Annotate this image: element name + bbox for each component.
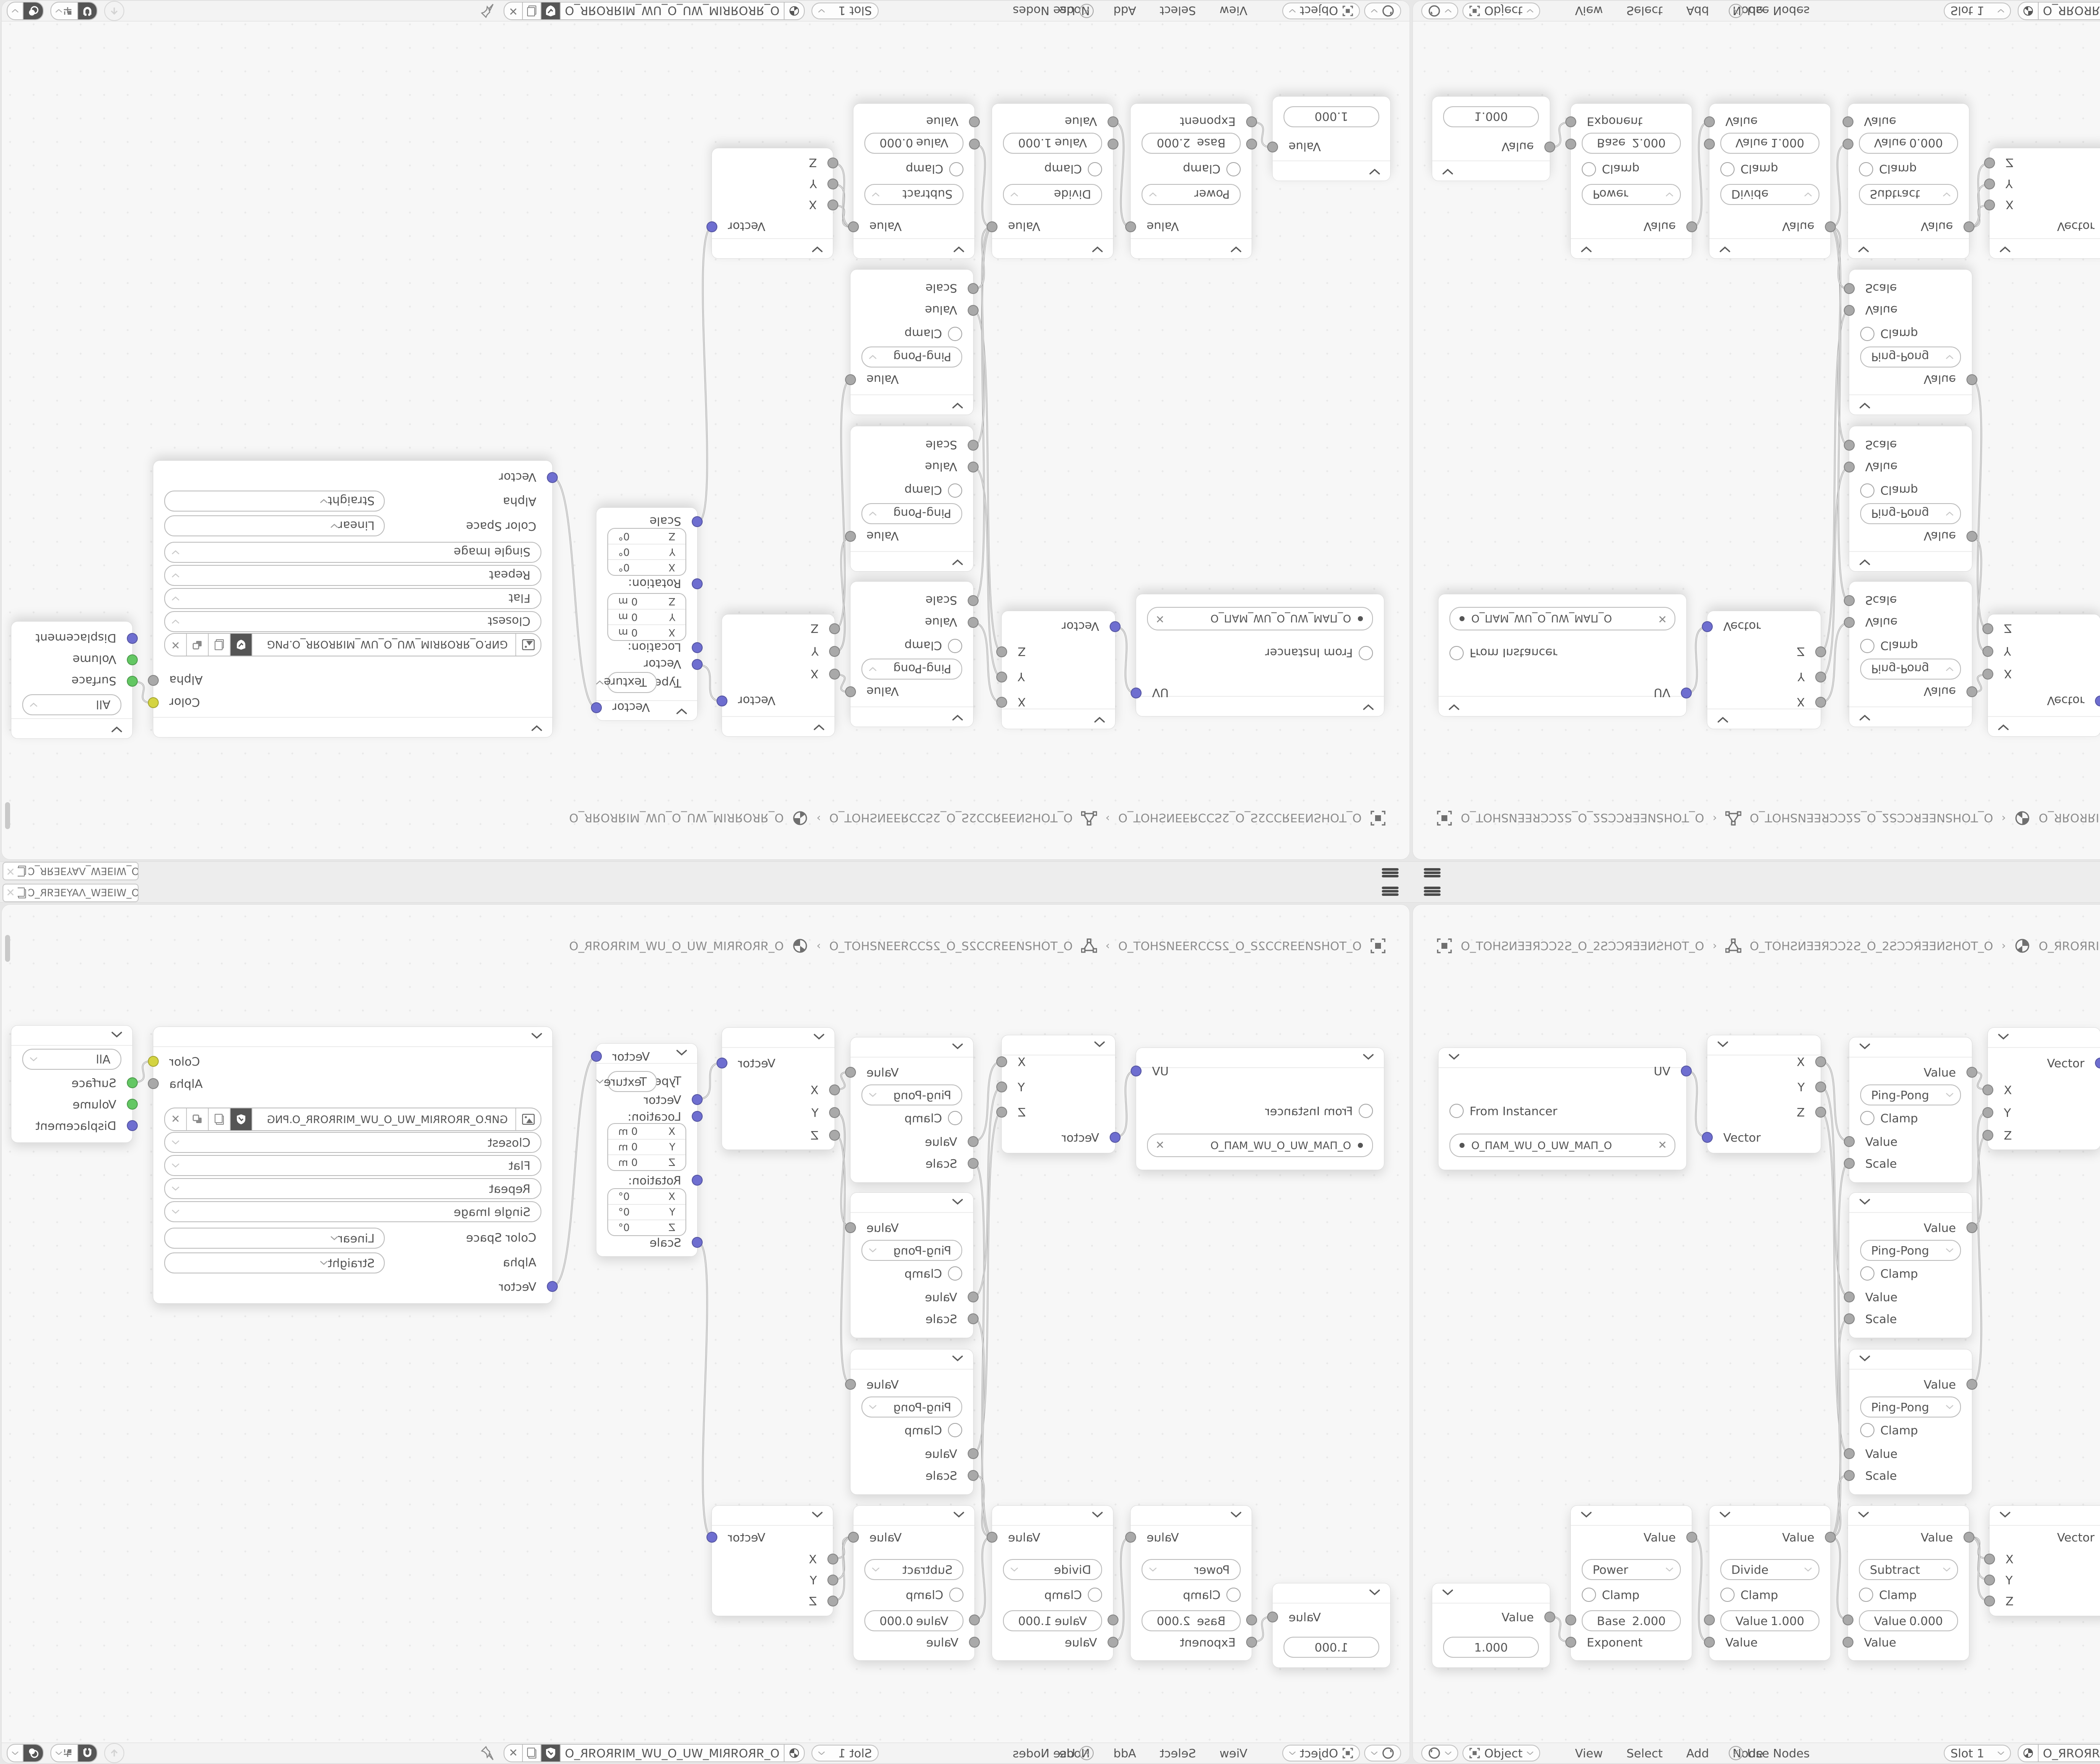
- input-socket-value[interactable]: [968, 1448, 979, 1459]
- node-material-output[interactable]: AllSurfaceVolumeDisplacement: [11, 1025, 133, 1143]
- input-socket-surface[interactable]: [127, 1077, 138, 1088]
- vertical-scrollbar[interactable]: [5, 802, 10, 829]
- hamburger-menu-icon[interactable]: [1382, 886, 1399, 898]
- node-math-subtract[interactable]: ValueSubtractClampValue0.000Value: [853, 1505, 975, 1661]
- output-socket-value[interactable]: [1686, 1532, 1697, 1543]
- hamburger-menu-icon[interactable]: [1424, 886, 1441, 898]
- input-socket-scale[interactable]: [1844, 283, 1855, 294]
- copy-icon[interactable]: [209, 634, 231, 656]
- dropdown-flat[interactable]: Flat: [164, 588, 541, 609]
- proportional-edit-control[interactable]: [7, 1744, 44, 1762]
- output-socket-color[interactable]: [148, 697, 159, 708]
- dropdown-power[interactable]: Power: [1582, 1559, 1681, 1580]
- input-socket[interactable]: [1246, 139, 1257, 150]
- output-socket-value[interactable]: [848, 221, 859, 232]
- material-datablock[interactable]: O_ЯROЯRIM_WU_O_UW_MIЯROЯR_O ✕: [2018, 1744, 2100, 1762]
- snap-control[interactable]: [50, 1744, 97, 1762]
- editor-type-button[interactable]: [1421, 1745, 1458, 1761]
- collapse-chevron-icon[interactable]: [952, 559, 963, 565]
- collapse-chevron-icon[interactable]: [1092, 247, 1103, 252]
- input-socket-rotation[interactable]: [692, 1175, 703, 1186]
- collapse-chevron-icon[interactable]: [1449, 1054, 1459, 1060]
- collapse-chevron-icon[interactable]: [814, 724, 824, 730]
- input-socket-y[interactable]: [827, 1575, 838, 1585]
- output-socket-value[interactable]: [1966, 686, 1977, 697]
- output-socket-value[interactable]: [1963, 221, 1974, 232]
- dropdown-ping-pong[interactable]: Ping-Pong: [1860, 1240, 1961, 1261]
- checkbox-clamp[interactable]: Clamp: [1860, 1264, 1918, 1283]
- output-socket-value[interactable]: [1125, 221, 1136, 232]
- node-value[interactable]: Value1.000: [1272, 1583, 1391, 1668]
- collapse-chevron-icon[interactable]: [1369, 169, 1380, 175]
- value-field[interactable]: Value0.000: [1859, 1610, 1958, 1631]
- clear-icon[interactable]: ✕: [1148, 1139, 1172, 1152]
- output-socket-value[interactable]: [1125, 1532, 1136, 1543]
- input-socket-x[interactable]: [1984, 1554, 1995, 1564]
- input-socket-location[interactable]: [692, 642, 703, 653]
- up-arrow-icon[interactable]: [104, 1743, 124, 1763]
- collapse-chevron-icon[interactable]: [1719, 247, 1730, 252]
- input-socket-value[interactable]: [1844, 617, 1855, 628]
- node-mapping[interactable]: VectorType:TextureVectorLocation:X0 mY0 …: [596, 1043, 698, 1257]
- output-socket-value[interactable]: [987, 221, 997, 232]
- dropdown-subtract[interactable]: Subtract: [1859, 1559, 1958, 1580]
- proportional-circles-icon[interactable]: [24, 3, 43, 19]
- checkbox-clamp[interactable]: Clamp: [904, 325, 962, 343]
- value-field[interactable]: Value0.000: [864, 1610, 963, 1631]
- value-field[interactable]: Value0.000: [1859, 133, 1958, 154]
- output-socket-value[interactable]: [1966, 1222, 1977, 1233]
- node-math-subtract[interactable]: ValueSubtractClampValue0.000Value: [853, 103, 975, 259]
- input-socket-vector[interactable]: [1702, 621, 1713, 632]
- input-socket-y[interactable]: [1982, 1107, 1993, 1118]
- output-socket-value[interactable]: [845, 374, 856, 385]
- node-combine-xyz-top[interactable]: VectorXYZ: [1987, 614, 2100, 737]
- checkbox-clamp[interactable]: Clamp: [1720, 1585, 1778, 1604]
- dropdown-ping-pong[interactable]: Ping-Pong: [1860, 503, 1961, 524]
- dropdown-power[interactable]: Power: [1582, 184, 1681, 205]
- value-field[interactable]: 1.000: [1443, 106, 1539, 127]
- breadcrumb-item[interactable]: O_TOHƧИƎƎЯƆƆ2Ƨ_O_2ƧƆƆЯƎƎИƧHOT_O: [1118, 811, 1362, 825]
- checkbox-clamp[interactable]: Clamp: [1860, 481, 1918, 500]
- dropdown-divide[interactable]: Divide: [1003, 184, 1102, 205]
- clear-icon[interactable]: ✕: [1650, 1139, 1675, 1152]
- output-socket-color[interactable]: [148, 1056, 159, 1067]
- value-field[interactable]: 1.000: [1284, 106, 1379, 127]
- use-nodes-checkbox[interactable]: ✓: [1729, 1746, 1743, 1760]
- collapse-chevron-icon[interactable]: [1442, 169, 1453, 175]
- checkbox-clamp[interactable]: Clamp: [906, 1585, 963, 1604]
- material-datablock[interactable]: O_ЯROЯRIM_WU_O_UW_MIЯROЯR_O ✕: [504, 1744, 805, 1762]
- node-math-ping-pong-3[interactable]: ValuePing-PongClampValueScale: [1849, 1349, 1972, 1495]
- breadcrumb-item[interactable]: O_TOHƧИƎƎЯƆƆ2Ƨ_O_2ƧƆƆЯƎƎИƧHOT_O: [1118, 939, 1362, 953]
- menu-view[interactable]: View: [1217, 1746, 1250, 1760]
- menu-add[interactable]: Add: [1684, 1746, 1711, 1760]
- up-arrow-icon[interactable]: [104, 1, 124, 21]
- collapse-chevron-icon[interactable]: [1363, 1054, 1374, 1060]
- dropdown-texture[interactable]: Texture: [607, 672, 657, 693]
- collapse-chevron-icon[interactable]: [1858, 247, 1869, 252]
- node-math-divide[interactable]: ValueDivideClampValue1.000Value: [1709, 103, 1831, 259]
- collapse-chevron-icon[interactable]: [1442, 1589, 1453, 1595]
- value-field[interactable]: Value1.000: [1003, 1610, 1102, 1631]
- collapse-chevron-icon[interactable]: [1719, 1512, 1730, 1517]
- dropdown-subtract[interactable]: Subtract: [864, 184, 963, 205]
- input-socket-value[interactable]: [1844, 1448, 1855, 1459]
- collapse-chevron-icon[interactable]: [953, 247, 964, 252]
- node-math-ping-pong-1[interactable]: ValuePing-PongClampValueScale: [1849, 581, 1972, 727]
- dropdown-straight[interactable]: Straight: [164, 491, 385, 512]
- input-socket-rotation[interactable]: [692, 578, 703, 589]
- dropdown-flat[interactable]: Flat: [164, 1155, 541, 1176]
- input-socket-value[interactable]: [1844, 1136, 1855, 1147]
- input-socket-scale[interactable]: [968, 1313, 979, 1324]
- input-socket-scale[interactable]: [1844, 440, 1855, 451]
- breadcrumb-item[interactable]: O_TOHƧИƎƎЯƆƆ2Ƨ_O_2ƧƆƆЯƎƎИƧHOT_O: [829, 811, 1073, 825]
- input-socket-scale[interactable]: [1844, 595, 1855, 606]
- output-socket-value[interactable]: [845, 686, 856, 697]
- collapse-chevron-icon[interactable]: [1998, 724, 2009, 730]
- shader-type-dropdown[interactable]: Object: [1282, 3, 1360, 19]
- output-socket-value[interactable]: [1267, 142, 1278, 152]
- close-icon[interactable]: ✕: [3, 862, 18, 880]
- input-socket-vector[interactable]: [1702, 1132, 1713, 1143]
- node-value[interactable]: Value1.000: [1432, 96, 1550, 181]
- use-nodes-checkbox[interactable]: ✓: [1079, 4, 1094, 18]
- breadcrumb-item[interactable]: O_TOHƧИƎƎЯƆƆ2Ƨ_O_2ƧƆƆЯƎƎИƧHOT_O: [829, 939, 1073, 953]
- node-mapping[interactable]: VectorType:TextureVectorLocation:X0 mY0 …: [596, 507, 698, 721]
- input-socket-exponent[interactable]: [1565, 116, 1576, 127]
- input-socket-exponent[interactable]: [1246, 1637, 1257, 1648]
- fake-user-shield-icon[interactable]: [541, 1745, 561, 1761]
- node-math-power[interactable]: ValuePowerClampBase2.000Exponent: [1570, 103, 1692, 259]
- proportional-circles-icon[interactable]: [24, 1745, 43, 1761]
- checkbox-clamp[interactable]: Clamp: [1044, 1585, 1102, 1604]
- collapse-chevron-icon[interactable]: [1859, 1199, 1870, 1205]
- output-socket-value[interactable]: [1825, 1532, 1836, 1543]
- node-image-texture[interactable]: ColorAlphaGИP.O_ЯROЯRIM_WU_O_UW_MIЯROЯR_…: [153, 1026, 553, 1304]
- input-socket-vector[interactable]: [692, 1094, 703, 1105]
- collapse-chevron-icon[interactable]: [1094, 717, 1105, 723]
- dropdown-subtract[interactable]: Subtract: [1859, 184, 1958, 205]
- output-socket-value[interactable]: [1686, 221, 1697, 232]
- menu-view[interactable]: View: [1217, 4, 1250, 18]
- checkbox-from-instancer[interactable]: From Instancer: [1449, 644, 1557, 662]
- dropdown-all[interactable]: All: [22, 694, 121, 715]
- vertical-scrollbar[interactable]: [5, 935, 10, 962]
- output-socket-vector[interactable]: [706, 221, 717, 232]
- breadcrumb-item[interactable]: O_ЯROЯRIM_WU_O_UW_MIЯROЯR_O: [569, 811, 784, 825]
- menu-add[interactable]: Add: [1684, 4, 1711, 18]
- collapse-chevron-icon[interactable]: [952, 1355, 963, 1361]
- node-math-ping-pong-1[interactable]: ValuePing-PongClampValueScale: [850, 1037, 974, 1183]
- output-socket-x[interactable]: [1815, 1056, 1826, 1067]
- input-socket-z[interactable]: [1982, 623, 1993, 634]
- snap-grid-icon[interactable]: [51, 1745, 78, 1761]
- slot-dropdown[interactable]: Slot 1: [1944, 3, 2011, 19]
- output-socket-z[interactable]: [1815, 646, 1826, 657]
- input-socket-value[interactable]: [1704, 1637, 1715, 1648]
- pin-icon[interactable]: [481, 1746, 493, 1760]
- checkbox-clamp[interactable]: Clamp: [904, 1109, 962, 1127]
- output-socket-value[interactable]: [1966, 1067, 1977, 1078]
- collapse-chevron-icon[interactable]: [531, 1033, 542, 1039]
- checkbox-clamp[interactable]: Clamp: [1860, 325, 1918, 343]
- value-field[interactable]: Value1.000: [1003, 133, 1102, 154]
- menu-view[interactable]: View: [1572, 1746, 1605, 1760]
- collapse-chevron-icon[interactable]: [814, 1034, 824, 1039]
- collapse-chevron-icon[interactable]: [1859, 1355, 1870, 1361]
- input-socket-value[interactable]: [1704, 116, 1715, 127]
- image-datablock[interactable]: GИP.O_ЯROЯRIM_WU_O_UW_MIЯROЯR_O.PNG✕: [164, 1108, 541, 1131]
- node-math-subtract[interactable]: ValueSubtractClampValue0.000Value: [1848, 103, 1969, 259]
- output-socket-value[interactable]: [1825, 221, 1836, 232]
- node-separate-xyz[interactable]: XYZVector: [1707, 1035, 1821, 1153]
- dropdown-texture[interactable]: Texture: [607, 1071, 657, 1092]
- node-canvas[interactable]: UVFrom InstancerO_ПAM_WU_O_UW_MAП_O✕XYZV…: [2, 905, 1410, 1743]
- output-socket-value[interactable]: [848, 1532, 859, 1543]
- input-socket-displacement[interactable]: [127, 1120, 138, 1131]
- editor-type-button[interactable]: [1421, 3, 1458, 19]
- input-socket-x[interactable]: [829, 669, 840, 680]
- collapse-chevron-icon[interactable]: [1363, 704, 1374, 710]
- dropdown-linear[interactable]: Linear: [164, 515, 385, 536]
- collapse-chevron-icon[interactable]: [952, 1199, 963, 1205]
- input-socket[interactable]: [1246, 1614, 1257, 1625]
- menu-select[interactable]: Select: [1157, 1746, 1198, 1760]
- output-socket-x[interactable]: [996, 1056, 1007, 1067]
- use-nodes-checkbox[interactable]: ✓: [1729, 4, 1743, 18]
- dropdown-ping-pong[interactable]: Ping-Pong: [1860, 659, 1961, 680]
- input-socket-scale[interactable]: [968, 1470, 979, 1481]
- output-socket-x[interactable]: [996, 697, 1007, 708]
- node-value[interactable]: Value1.000: [1272, 96, 1391, 181]
- collapse-chevron-icon[interactable]: [1998, 1034, 2009, 1039]
- clear-icon[interactable]: ✕: [1650, 612, 1675, 625]
- view-layer-field[interactable]: O_WIƎEW_ΛAYƎEЯR_O: [28, 862, 139, 880]
- material-datablock[interactable]: O_ЯROЯRIM_WU_O_UW_MIЯROЯR_O ✕: [504, 2, 805, 20]
- output-socket-value[interactable]: [845, 1222, 856, 1233]
- collapse-chevron-icon[interactable]: [2000, 1512, 2011, 1517]
- output-socket-value[interactable]: [1544, 142, 1555, 152]
- pack-icon[interactable]: [187, 1108, 209, 1130]
- input-socket-vector[interactable]: [547, 1281, 558, 1292]
- input-socket-vector[interactable]: [692, 659, 703, 670]
- pin-icon[interactable]: [481, 4, 493, 18]
- value-field[interactable]: Value1.000: [1720, 133, 1819, 154]
- node-math-subtract[interactable]: ValueSubtractClampValue0.000Value: [1848, 1505, 1969, 1661]
- input-socket-value[interactable]: [1844, 1291, 1855, 1302]
- menu-add[interactable]: Add: [1111, 1746, 1139, 1760]
- collapse-chevron-icon[interactable]: [812, 1512, 823, 1517]
- uv-map-selector[interactable]: O_ПAM_WU_O_UW_MAП_O✕: [1449, 1134, 1675, 1157]
- dropdown-divide[interactable]: Divide: [1720, 184, 1819, 205]
- output-socket-alpha[interactable]: [148, 675, 159, 686]
- clear-icon[interactable]: ✕: [1148, 612, 1172, 625]
- dropdown-ping-pong[interactable]: Ping-Pong: [861, 1084, 962, 1105]
- fake-user-shield-icon[interactable]: [541, 3, 561, 19]
- input-socket[interactable]: [1108, 1614, 1118, 1625]
- dropdown-ping-pong[interactable]: Ping-Pong: [1860, 1084, 1961, 1105]
- node-math-power[interactable]: ValuePowerClampBase2.000Exponent: [1570, 1505, 1692, 1661]
- input-socket-value[interactable]: [1108, 1637, 1118, 1648]
- checkbox-from-instancer[interactable]: From Instancer: [1449, 1102, 1557, 1120]
- input-socket-value[interactable]: [969, 1637, 980, 1648]
- checkbox-clamp[interactable]: Clamp: [1183, 160, 1241, 178]
- checkbox-clamp[interactable]: Clamp: [1860, 637, 1918, 655]
- unlink-icon[interactable]: ✕: [504, 1745, 523, 1761]
- input-socket-exponent[interactable]: [1246, 116, 1257, 127]
- dropdown-closest[interactable]: Closest: [164, 611, 541, 632]
- slot-dropdown[interactable]: Slot 1: [811, 3, 879, 19]
- uv-map-selector[interactable]: O_ПAM_WU_O_UW_MAП_O✕: [1147, 607, 1373, 630]
- node-separate-xyz[interactable]: XYZVector: [1001, 1035, 1116, 1153]
- node-combine-xyz-top[interactable]: VectorXYZ: [722, 614, 835, 737]
- input-socket-y[interactable]: [1984, 1575, 1995, 1585]
- fake-user-shield-icon[interactable]: [231, 634, 252, 656]
- unlink-icon[interactable]: ✕: [504, 3, 523, 19]
- collapse-chevron-icon[interactable]: [1231, 247, 1242, 252]
- snap-grid-icon[interactable]: [51, 3, 78, 19]
- dropdown-closest[interactable]: Closest: [164, 1132, 541, 1153]
- vector-fields[interactable]: X0 mY0 mZ0 m: [607, 593, 686, 641]
- node-uv-map[interactable]: UVFrom InstancerO_ПAM_WU_O_UW_MAП_O✕: [1438, 1047, 1687, 1170]
- checkbox-clamp[interactable]: Clamp: [904, 1264, 962, 1283]
- input-socket-y[interactable]: [827, 178, 838, 189]
- collapse-chevron-icon[interactable]: [1717, 717, 1728, 723]
- collapse-chevron-icon[interactable]: [1092, 1512, 1103, 1517]
- checkbox-clamp[interactable]: Clamp: [1582, 160, 1640, 178]
- dropdown-ping-pong[interactable]: Ping-Pong: [861, 346, 962, 367]
- collapse-chevron-icon[interactable]: [1717, 1041, 1728, 1047]
- dropdown-single-image[interactable]: Single Image: [164, 1201, 541, 1222]
- vector-fields[interactable]: X0 mY0 mZ0 m: [607, 1123, 686, 1171]
- node-math-ping-pong-2[interactable]: ValuePing-PongClampValueScale: [1849, 1192, 1972, 1338]
- node-combine-xyz-top[interactable]: VectorXYZ: [1987, 1027, 2100, 1150]
- checkbox-from-instancer[interactable]: From Instancer: [1265, 644, 1373, 662]
- editor-type-button[interactable]: [1364, 3, 1401, 19]
- fake-user-shield-icon[interactable]: [231, 1108, 252, 1130]
- input-socket-scale[interactable]: [1844, 1158, 1855, 1169]
- breadcrumb-item[interactable]: O_ЯROЯRIM_WU_O_UW_MIЯROЯR_O: [2039, 811, 2100, 825]
- node-value[interactable]: Value1.000: [1432, 1583, 1550, 1668]
- node-math-ping-pong-3[interactable]: ValuePing-PongClampValueScale: [850, 1349, 974, 1495]
- collapse-chevron-icon[interactable]: [1581, 247, 1592, 252]
- node-math-ping-pong-1[interactable]: ValuePing-PongClampValueScale: [1849, 1037, 1972, 1183]
- node-canvas[interactable]: UVFrom InstancerO_ПAM_WU_O_UW_MAП_O✕XYZV…: [2, 21, 1410, 859]
- checkbox-clamp[interactable]: Clamp: [1582, 1585, 1640, 1604]
- input-socket-y[interactable]: [1984, 178, 1995, 189]
- copy-icon[interactable]: [209, 1108, 231, 1130]
- input-socket-z[interactable]: [1984, 1596, 1995, 1606]
- checkbox-clamp[interactable]: Clamp: [1859, 160, 1917, 178]
- dropdown-ping-pong[interactable]: Ping-Pong: [861, 1396, 962, 1417]
- input-socket-value[interactable]: [968, 1291, 979, 1302]
- uv-map-selector[interactable]: O_ПAM_WU_O_UW_MAП_O✕: [1147, 1134, 1373, 1157]
- node-math-divide[interactable]: ValueDivideClampValue1.000Value: [992, 1505, 1113, 1661]
- dropdown-power[interactable]: Power: [1142, 1559, 1241, 1580]
- checkbox-clamp[interactable]: Clamp: [904, 1421, 962, 1439]
- node-combine-xyz-bottom[interactable]: VectorXYZ: [711, 148, 833, 259]
- collapse-chevron-icon[interactable]: [111, 727, 122, 732]
- magnet-icon[interactable]: [78, 1745, 97, 1761]
- editor-type-button[interactable]: [1364, 1745, 1401, 1761]
- input-socket-z[interactable]: [829, 623, 840, 634]
- input-socket-scale[interactable]: [968, 1158, 979, 1169]
- unlink-icon[interactable]: ✕: [165, 634, 187, 656]
- dropdown-ping-pong[interactable]: Ping-Pong: [861, 659, 962, 680]
- checkbox-clamp[interactable]: Clamp: [1183, 1585, 1241, 1604]
- input-socket-volume[interactable]: [127, 1099, 138, 1110]
- output-socket-vector[interactable]: [717, 1058, 727, 1068]
- output-socket-y[interactable]: [996, 1081, 1007, 1092]
- breadcrumb-item[interactable]: O_TOHƧИƎƎЯƆƆ2Ƨ_O_2ƧƆƆЯƎƎИƧHOT_O: [1461, 811, 1704, 825]
- node-combine-xyz-bottom[interactable]: VectorXYZ: [711, 1505, 833, 1616]
- menu-add[interactable]: Add: [1111, 4, 1139, 18]
- dropdown-repeat[interactable]: Repeat: [164, 1178, 541, 1199]
- input-socket-value[interactable]: [1843, 116, 1853, 127]
- value-field[interactable]: Base2.000: [1582, 1610, 1681, 1631]
- checkbox-clamp[interactable]: Clamp: [1859, 1585, 1917, 1604]
- dropdown-repeat[interactable]: Repeat: [164, 565, 541, 586]
- hamburger-menu-icon[interactable]: [1424, 866, 1441, 878]
- proportional-edit-control[interactable]: [7, 2, 44, 20]
- output-socket-value[interactable]: [1966, 1379, 1977, 1390]
- input-socket-z[interactable]: [1984, 157, 1995, 168]
- collapse-chevron-icon[interactable]: [1859, 403, 1870, 409]
- input-socket-scale[interactable]: [968, 440, 979, 451]
- shader-type-dropdown[interactable]: Object: [1282, 1745, 1360, 1761]
- node-math-power[interactable]: ValuePowerClampBase2.000Exponent: [1130, 1505, 1252, 1661]
- collapse-chevron-icon[interactable]: [1369, 1589, 1380, 1595]
- checkbox-clamp[interactable]: Clamp: [1044, 160, 1102, 178]
- output-socket-vector[interactable]: [717, 696, 727, 706]
- menu-select[interactable]: Select: [1624, 4, 1665, 18]
- node-canvas[interactable]: UVFrom InstancerO_ПAM_WU_O_UW_MAП_O✕XYZV…: [1413, 21, 2100, 859]
- collapse-chevron-icon[interactable]: [952, 715, 963, 721]
- output-socket-value[interactable]: [1966, 531, 1977, 542]
- collapse-chevron-icon[interactable]: [531, 725, 542, 731]
- checkbox-clamp[interactable]: Clamp: [1720, 160, 1778, 178]
- output-socket-vector[interactable]: [706, 1532, 717, 1543]
- input-socket[interactable]: [969, 1614, 980, 1625]
- node-math-ping-pong-1[interactable]: ValuePing-PongClampValueScale: [850, 581, 974, 727]
- output-socket-vector[interactable]: [591, 702, 602, 713]
- node-math-ping-pong-2[interactable]: ValuePing-PongClampValueScale: [850, 426, 974, 572]
- checkbox-from-instancer[interactable]: From Instancer: [1265, 1102, 1373, 1120]
- breadcrumb-item[interactable]: O_TOHƧИƎƎЯƆƆ2Ƨ_O_2ƧƆƆЯƎƎИƧHOT_O: [1461, 939, 1704, 953]
- output-socket-z[interactable]: [1815, 1107, 1826, 1118]
- output-socket-value[interactable]: [1267, 1612, 1278, 1622]
- node-math-ping-pong-2[interactable]: ValuePing-PongClampValueScale: [1849, 426, 1972, 572]
- node-separate-xyz[interactable]: XYZVector: [1001, 611, 1116, 729]
- input-socket-value[interactable]: [968, 1136, 979, 1147]
- material-datablock[interactable]: O_ЯROЯRIM_WU_O_UW_MIЯROЯR_O ✕: [2018, 2, 2100, 20]
- checkbox-clamp[interactable]: Clamp: [904, 637, 962, 655]
- input-socket-displacement[interactable]: [127, 633, 138, 644]
- collapse-chevron-icon[interactable]: [952, 403, 963, 409]
- input-socket-value[interactable]: [1843, 1637, 1853, 1648]
- snap-control[interactable]: [50, 2, 97, 20]
- input-socket-x[interactable]: [829, 1084, 840, 1095]
- input-socket-scale[interactable]: [1844, 1313, 1855, 1324]
- input-socket-scale[interactable]: [1844, 1470, 1855, 1481]
- input-socket-vector[interactable]: [547, 472, 558, 483]
- value-field[interactable]: Base2.000: [1582, 133, 1681, 154]
- input-socket[interactable]: [969, 139, 980, 150]
- node-math-ping-pong-3[interactable]: ValuePing-PongClampValueScale: [1849, 269, 1972, 415]
- node-math-power[interactable]: ValuePowerClampBase2.000Exponent: [1130, 103, 1252, 259]
